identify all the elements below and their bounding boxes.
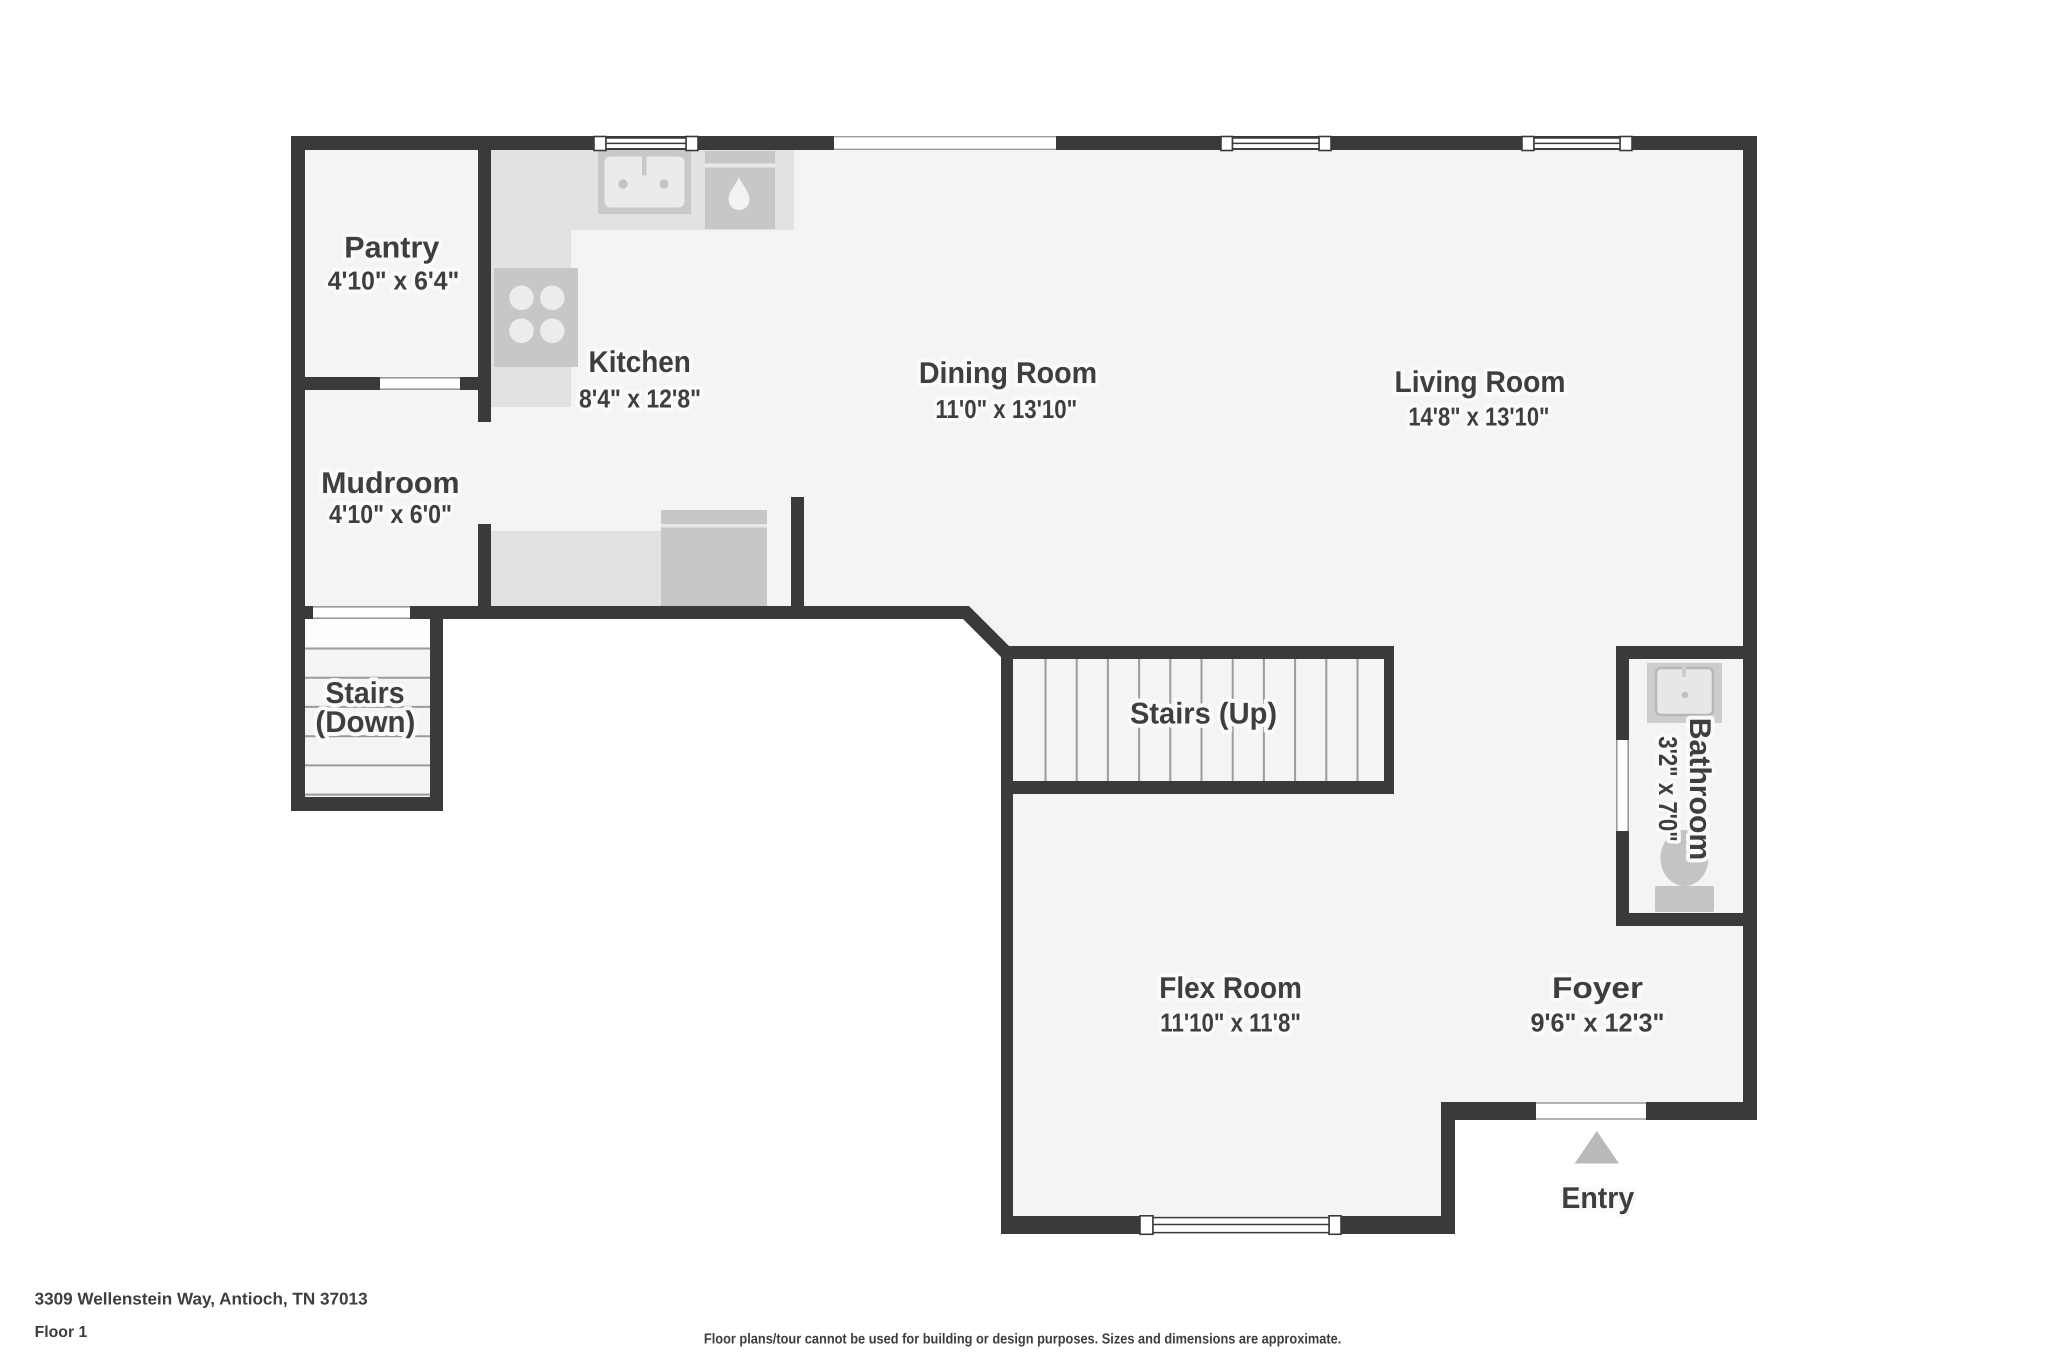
svg-text:Living Room: Living Room [1395, 366, 1566, 399]
svg-text:Bathroom: Bathroom [1683, 718, 1716, 861]
svg-text:11'0" x 13'10": 11'0" x 13'10" [935, 394, 1077, 424]
svg-text:Floor plans/tour cannot be use: Floor plans/tour cannot be used for buil… [704, 1332, 1341, 1348]
svg-text:4'10" x 6'0": 4'10" x 6'0" [329, 499, 452, 529]
svg-text:Kitchen: Kitchen [589, 346, 691, 379]
svg-text:3'2" x 7'0": 3'2" x 7'0" [1653, 736, 1683, 842]
svg-text:8'4" x 12'8": 8'4" x 12'8" [579, 383, 701, 413]
svg-text:Floor 1: Floor 1 [35, 1324, 88, 1341]
svg-text:(Down): (Down) [315, 706, 415, 739]
svg-text:9'6" x 12'3": 9'6" x 12'3" [1531, 1007, 1665, 1037]
svg-text:Mudroom: Mudroom [321, 467, 459, 500]
svg-text:11'10" x 11'8": 11'10" x 11'8" [1160, 1007, 1301, 1037]
svg-text:Dining Room: Dining Room [919, 357, 1097, 390]
svg-text:4'10" x 6'4": 4'10" x 6'4" [328, 266, 460, 296]
svg-text:3309 Wellenstein Way, Antioch,: 3309 Wellenstein Way, Antioch, TN 37013 [35, 1289, 368, 1308]
svg-text:Pantry: Pantry [344, 231, 439, 264]
svg-text:Entry: Entry [1561, 1182, 1634, 1215]
svg-text:Flex Room: Flex Room [1159, 972, 1302, 1005]
svg-text:Stairs (Up): Stairs (Up) [1130, 697, 1277, 730]
svg-text:Foyer: Foyer [1552, 972, 1643, 1005]
svg-text:14'8" x 13'10": 14'8" x 13'10" [1408, 402, 1549, 432]
